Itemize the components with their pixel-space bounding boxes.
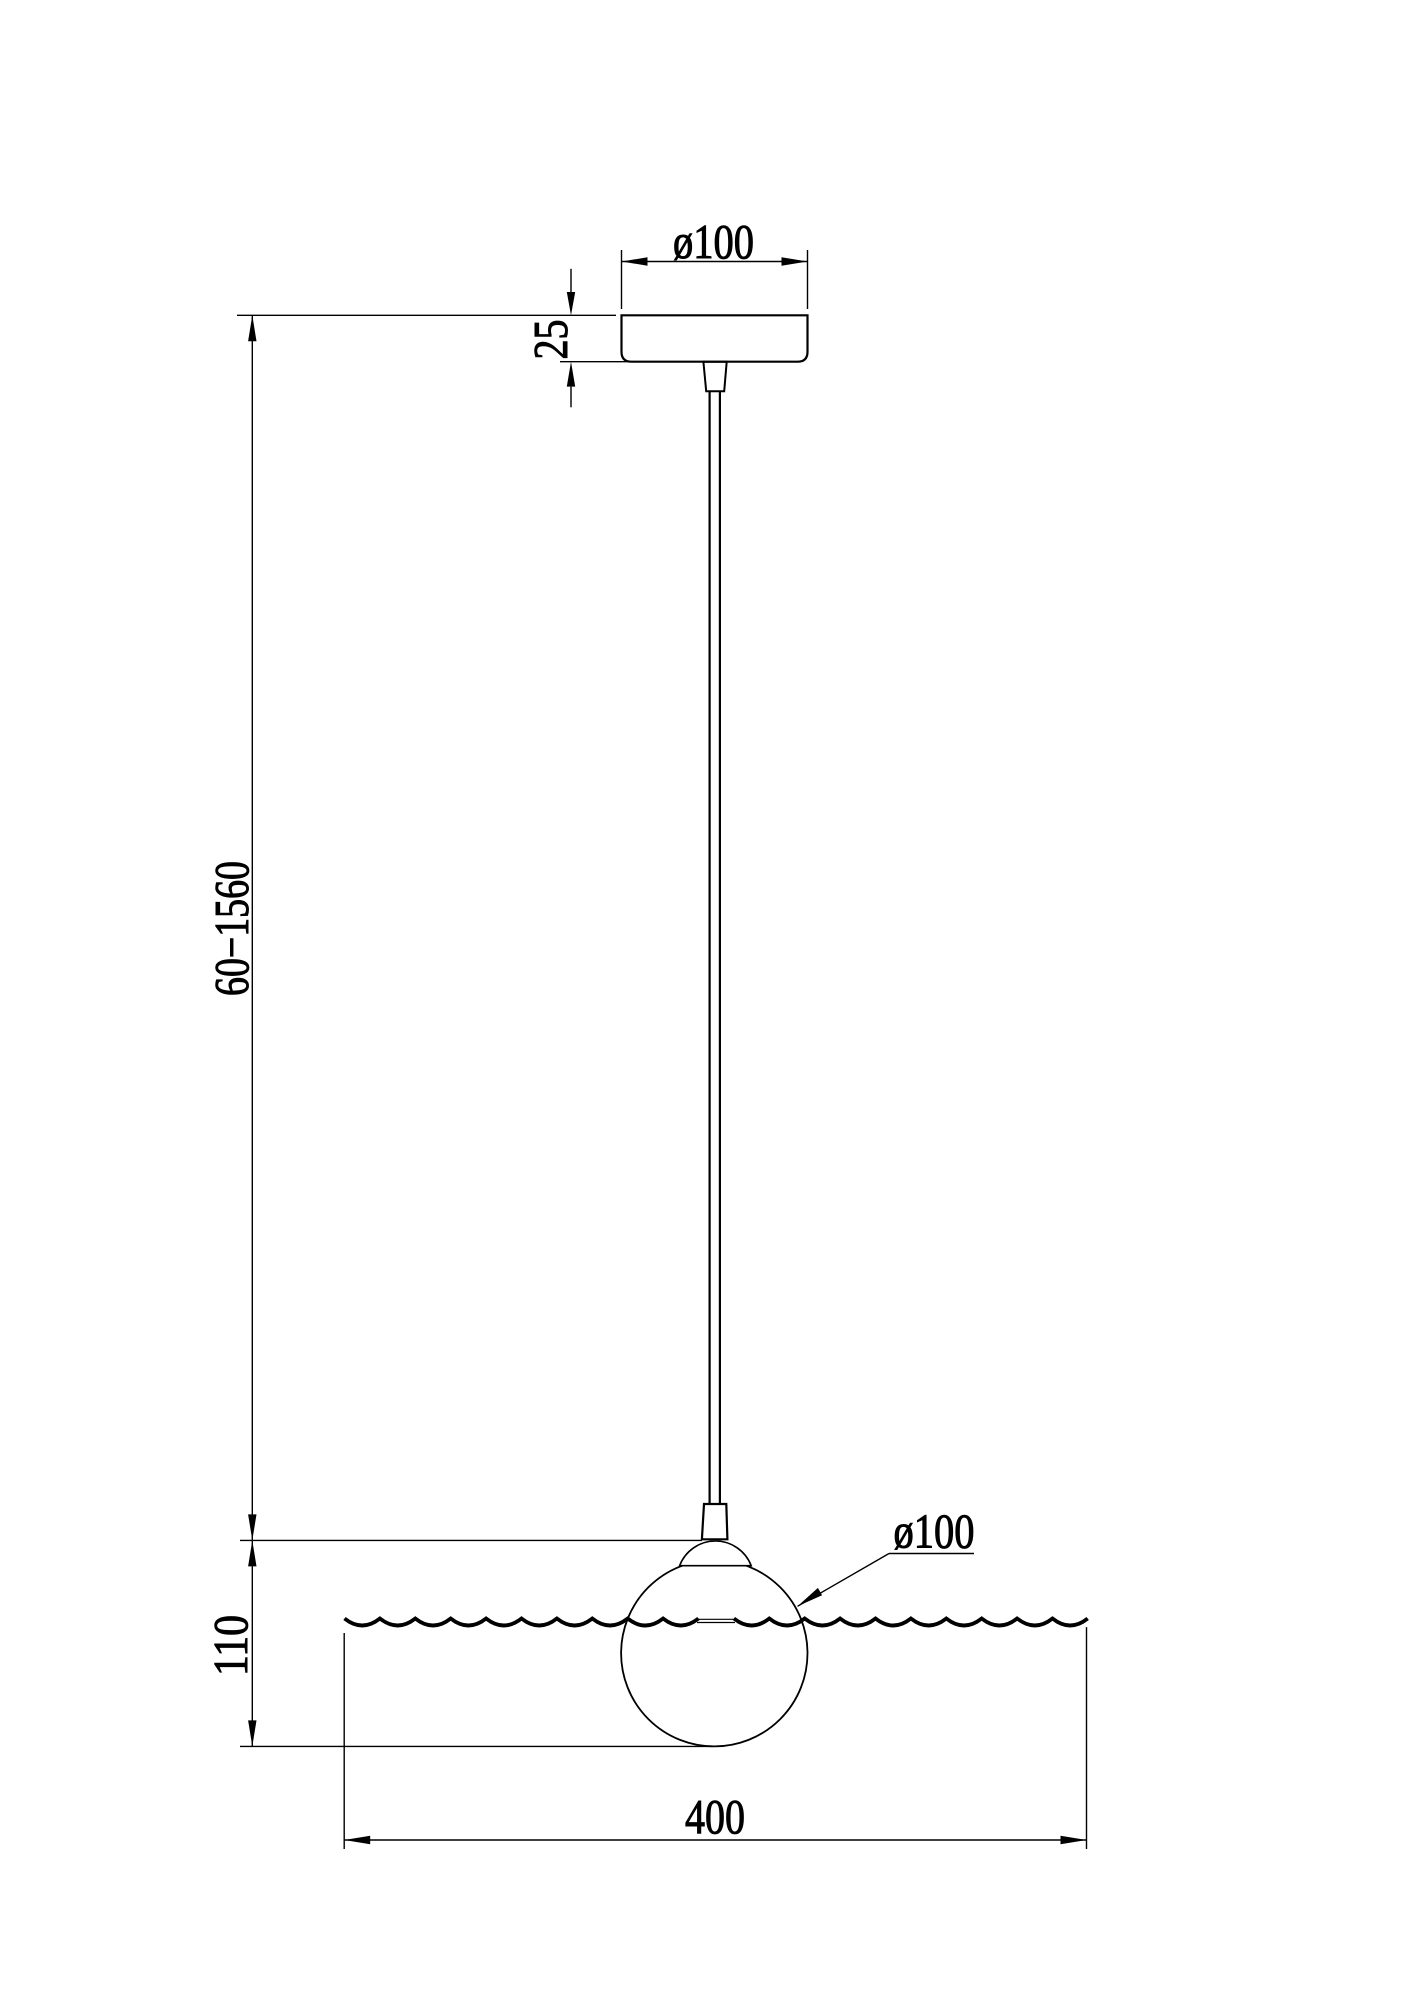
svg-text:400: 400 — [685, 1789, 745, 1844]
svg-text:ø100: ø100 — [894, 1504, 975, 1559]
svg-text:25: 25 — [523, 320, 578, 360]
svg-text:60−1560: 60−1560 — [204, 861, 259, 996]
svg-text:110: 110 — [203, 1615, 258, 1676]
svg-text:ø100: ø100 — [673, 214, 754, 269]
